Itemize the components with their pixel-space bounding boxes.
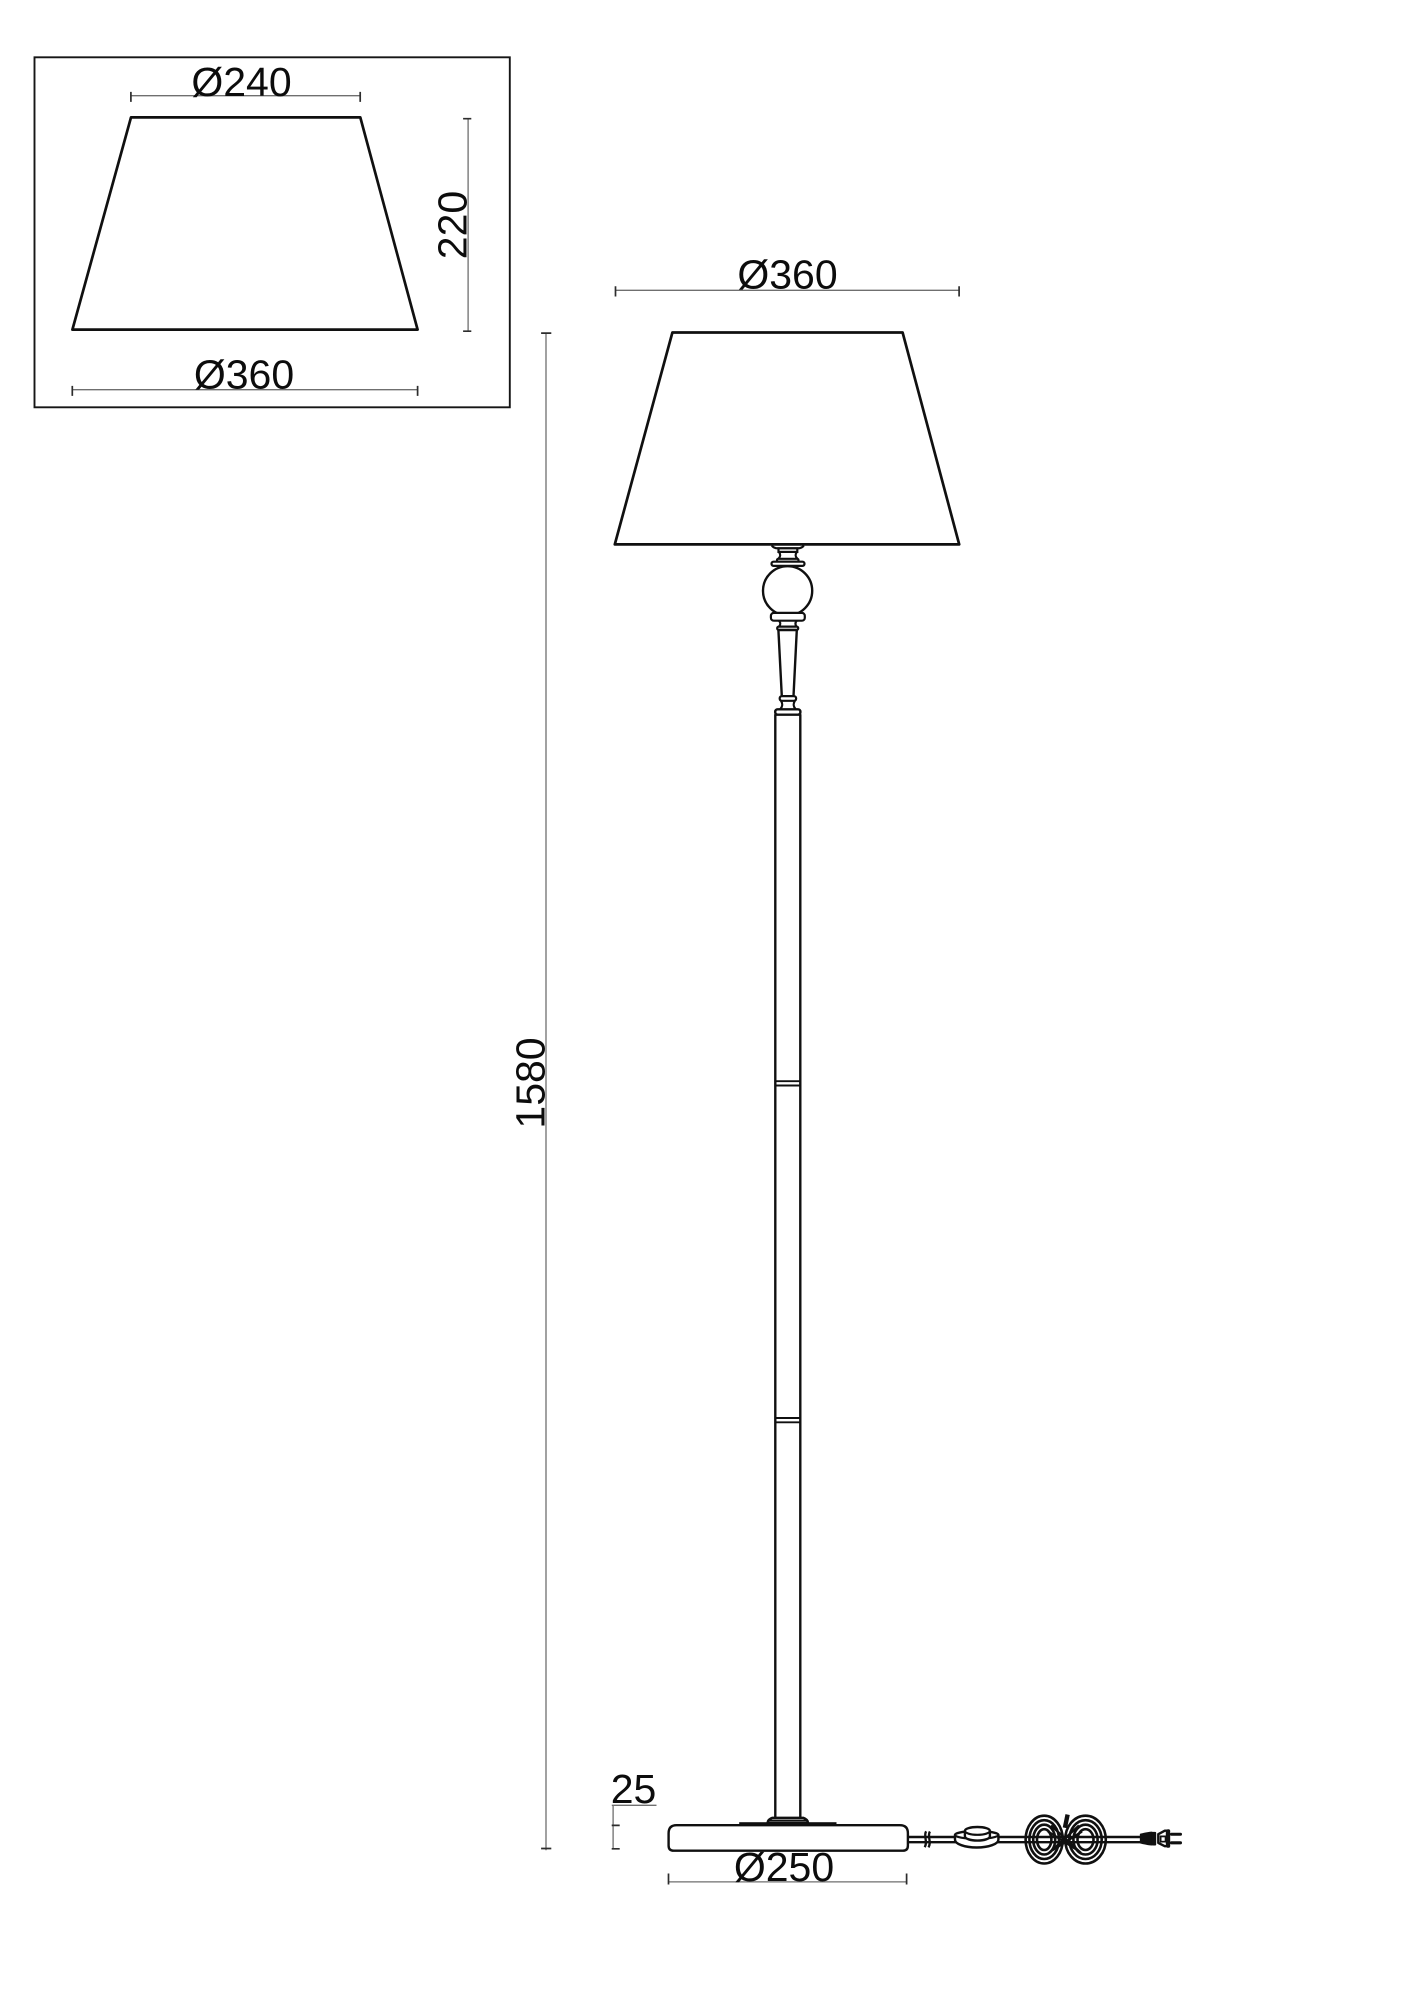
svg-text:Ø360: Ø360 <box>194 352 294 398</box>
svg-text:Ø250: Ø250 <box>734 1844 834 1890</box>
svg-text:Ø360: Ø360 <box>737 251 837 297</box>
svg-text:220: 220 <box>430 191 476 259</box>
svg-text:1580: 1580 <box>508 1037 554 1128</box>
svg-text:25: 25 <box>611 1766 657 1812</box>
svg-text:Ø240: Ø240 <box>191 59 291 105</box>
